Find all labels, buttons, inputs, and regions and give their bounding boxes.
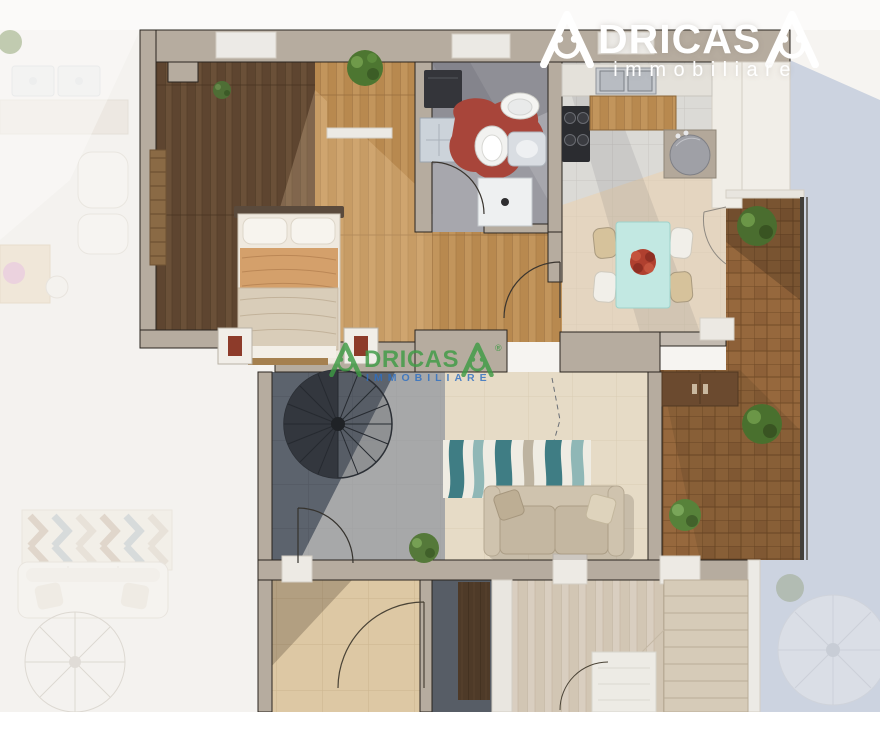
balcony-plant [669,499,701,531]
bedroom-window [216,32,276,58]
gas-hob [562,106,590,162]
terrace-plant [347,50,383,86]
floor-plant [409,533,439,563]
bathroom-window [452,34,510,58]
double-bed [238,214,340,365]
kitchen-island [664,130,716,178]
floorplan-canvas: DRICAS immobiliare DRICAS ® IMMOBILIARE [0,0,880,741]
faded-pink-flowers [3,262,25,284]
kitchen-window [598,32,654,54]
faded-spiral-staircase [25,612,125,712]
balcony-plant [742,404,782,444]
window-louver [150,150,166,265]
wardrobe [458,582,490,700]
sofa [484,486,634,560]
nightstand [344,328,378,364]
bottom-margin [0,712,880,741]
spiral-staircase [284,370,392,478]
wood-counter [590,96,676,130]
pillow [243,218,287,244]
hall-floor [415,232,562,342]
dining-chair [593,271,618,303]
flower-centerpiece [630,249,656,275]
faded-sofa [18,562,168,618]
top-margin [0,0,880,30]
stair-landing [592,652,656,712]
small-plant [213,81,231,99]
lower-left-floor [270,580,420,712]
kitchen-sink [596,68,656,94]
balcony-wardrobe [662,372,738,406]
dining-chair [669,271,694,303]
nightstand [218,328,252,364]
balcony-plant [737,206,777,246]
pillow [291,218,335,244]
dining-chair [592,227,617,259]
bed-bench [248,358,328,365]
floorplan-graphic [0,0,880,741]
dining-chair [668,227,693,259]
washing-machine [424,70,462,108]
